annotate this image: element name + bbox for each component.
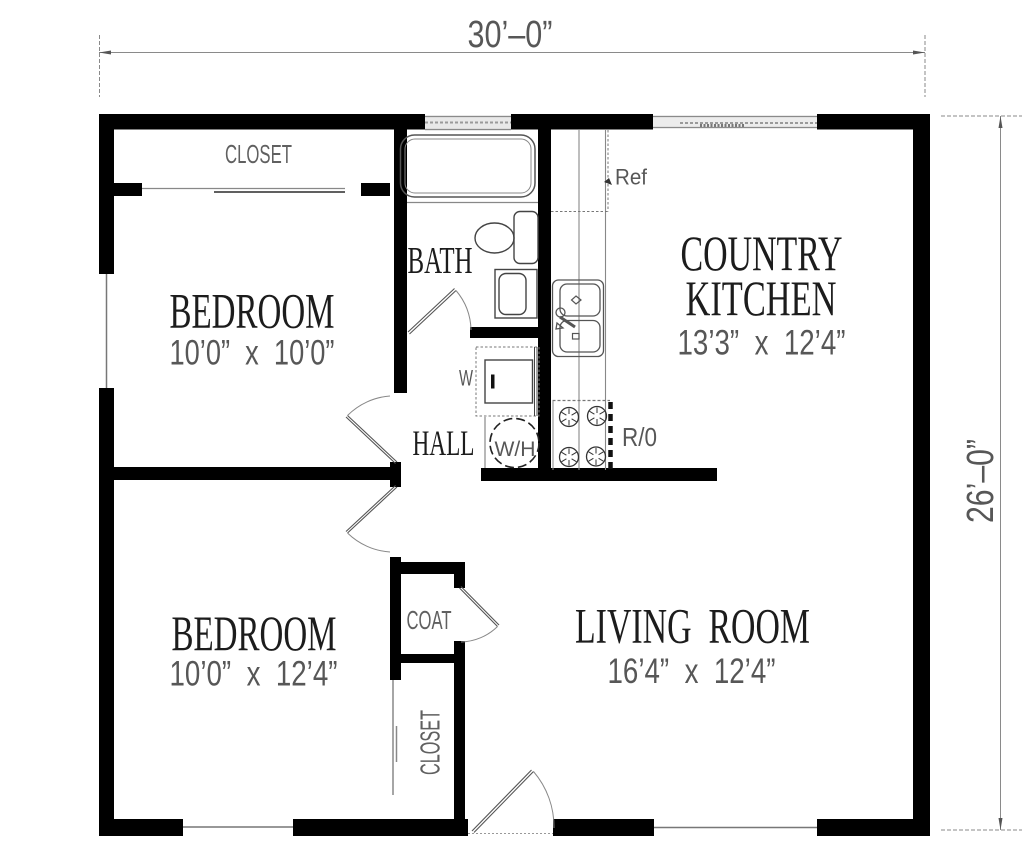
svg-text:W/H: W/H [495, 438, 536, 461]
svg-text:BATH: BATH [408, 240, 473, 282]
svg-text:30’–0”: 30’–0” [468, 14, 553, 56]
svg-text:BEDROOM: BEDROOM [172, 605, 337, 661]
svg-text:Ref: Ref [615, 165, 648, 190]
svg-text:10’0” x 10’0”: 10’0” x 10’0” [170, 334, 335, 373]
svg-text:COAT: COAT [407, 605, 452, 635]
svg-text:R/0: R/0 [622, 422, 657, 452]
svg-text:CLOSET: CLOSET [225, 139, 292, 169]
svg-text:13’3” x 12’4”: 13’3” x 12’4” [678, 324, 846, 363]
svg-text:KITCHEN: KITCHEN [686, 270, 837, 326]
svg-text:HALL: HALL [413, 423, 475, 463]
svg-text:26’–0”: 26’–0” [960, 439, 1002, 523]
svg-text:16’4” x 12’4”: 16’4” x 12’4” [608, 652, 776, 691]
svg-text:CLOSET: CLOSET [415, 710, 446, 775]
svg-text:LIVING ROOM: LIVING ROOM [575, 598, 810, 654]
svg-text:10’0” x 12’4”: 10’0” x 12’4” [170, 655, 338, 694]
svg-text:BEDROOM: BEDROOM [170, 283, 335, 339]
svg-text:W: W [459, 366, 473, 391]
